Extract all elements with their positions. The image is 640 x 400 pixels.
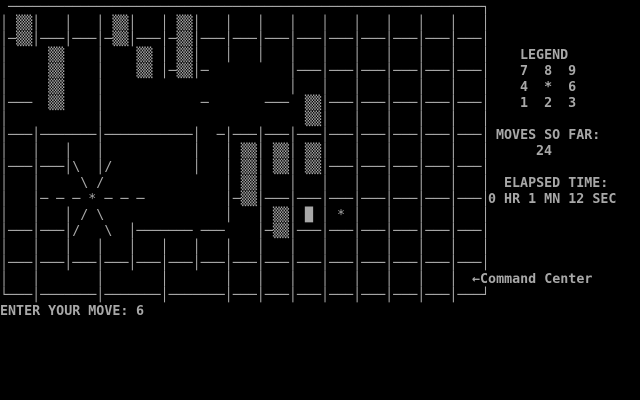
left-arrow-icon: ← bbox=[472, 272, 480, 287]
moves-label: MOVES SO FAR: bbox=[496, 128, 600, 144]
legend-title: LEGEND bbox=[520, 48, 568, 64]
dos-game-screen: ────────────────────────────────────────… bbox=[0, 0, 640, 400]
command-center-label: ←Command Center bbox=[472, 272, 592, 288]
command-center-text: Command Center bbox=[480, 272, 592, 287]
moves-count: 24 bbox=[536, 144, 552, 160]
elapsed-time-label: ELAPSED TIME: bbox=[504, 176, 608, 192]
move-prompt: ENTER YOUR MOVE:6 bbox=[0, 304, 128, 320]
move-prompt-label: ENTER YOUR MOVE: bbox=[0, 304, 128, 319]
move-input[interactable]: 6 bbox=[136, 304, 144, 320]
elapsed-time-value: 0 HR 1 MN 12 SEC bbox=[488, 192, 616, 208]
maze-grid: ────────────────────────────────────────… bbox=[0, 0, 489, 304]
legend-keypad: 7 8 9 4 * 6 1 2 3 bbox=[520, 64, 576, 112]
